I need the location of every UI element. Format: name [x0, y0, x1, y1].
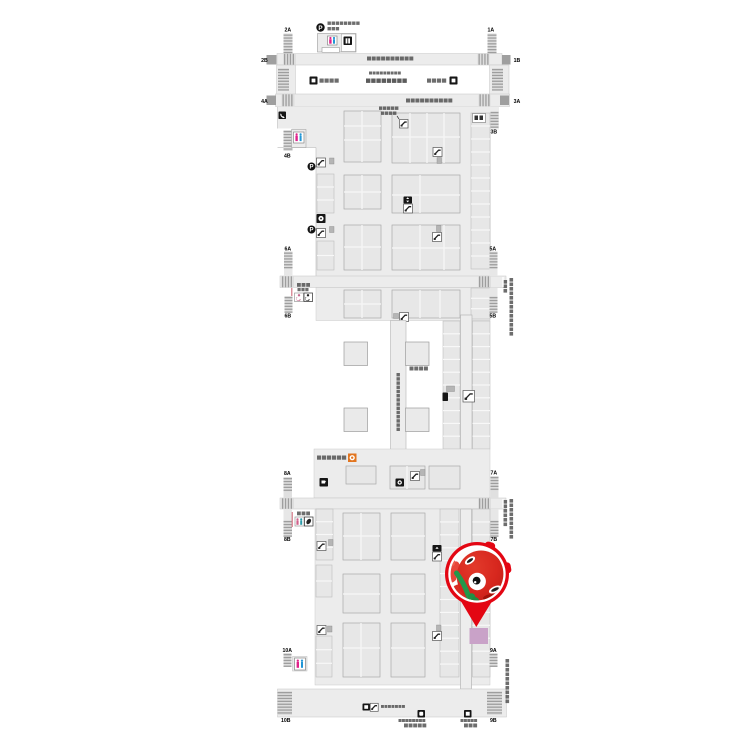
svg-text:2B: 2B: [261, 58, 268, 64]
svg-text:3B: 3B: [491, 130, 498, 136]
svg-text:8A: 8A: [284, 471, 291, 477]
svg-text:P: P: [309, 228, 313, 234]
svg-text:8B: 8B: [284, 537, 291, 543]
svg-text:7A: 7A: [491, 471, 498, 477]
svg-text:3A: 3A: [514, 99, 521, 105]
svg-text:P: P: [318, 25, 322, 32]
svg-text:6B: 6B: [285, 314, 292, 320]
svg-text:1B: 1B: [514, 58, 521, 64]
svg-text:4A: 4A: [261, 99, 268, 105]
svg-text:7B: 7B: [491, 537, 498, 543]
svg-text:9B: 9B: [490, 718, 497, 724]
svg-text:P: P: [309, 165, 313, 171]
svg-text:1A: 1A: [488, 28, 495, 34]
svg-text:4B: 4B: [284, 154, 291, 160]
svg-text:5B: 5B: [490, 314, 497, 320]
svg-text:2A: 2A: [285, 28, 292, 34]
svg-text:10B: 10B: [281, 718, 291, 724]
